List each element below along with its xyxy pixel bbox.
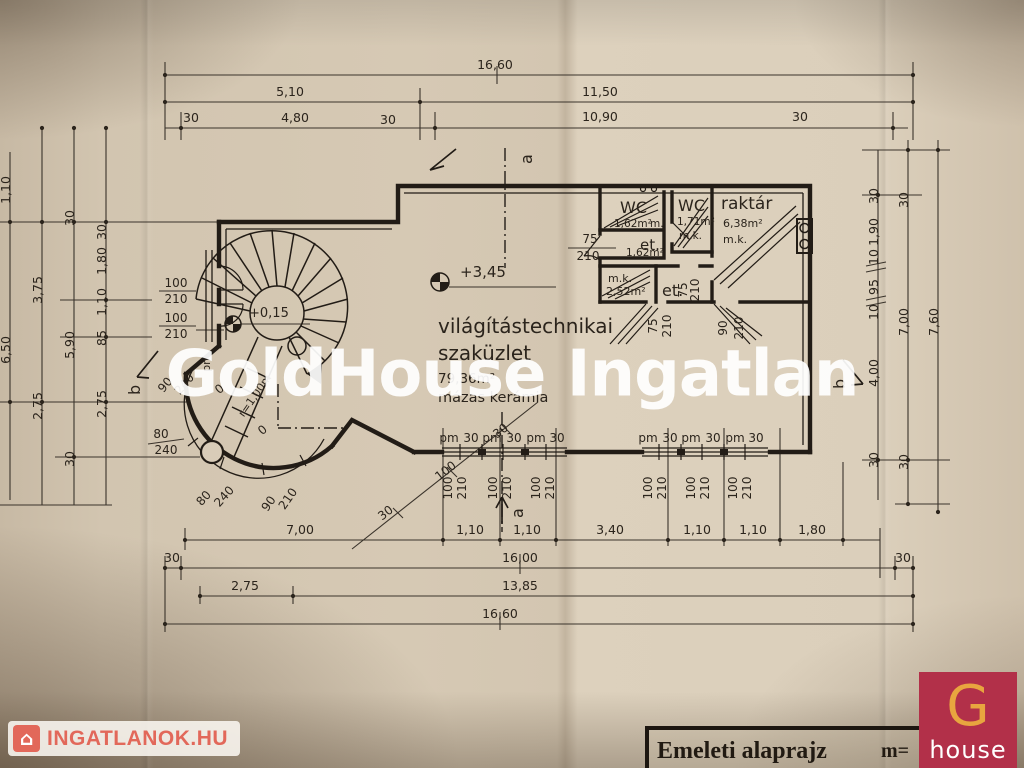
drawing-title: Emeleti alaprajz bbox=[657, 738, 827, 765]
dim-label: 1,10 bbox=[739, 522, 767, 537]
room-name: raktár bbox=[721, 194, 772, 214]
dim-label: 5,90 bbox=[62, 331, 77, 359]
room-name: WC bbox=[620, 198, 647, 217]
window-label: 30 bbox=[463, 431, 478, 445]
room-floor: m.k. bbox=[723, 233, 747, 246]
dim-label: 16,60 bbox=[482, 606, 518, 621]
dim-label: 0 bbox=[255, 422, 270, 438]
door-size-label: 210 bbox=[688, 279, 702, 302]
room-name: m.k. bbox=[608, 272, 632, 285]
room-area: 1,62m² bbox=[626, 247, 664, 259]
window-label: pm bbox=[725, 431, 744, 445]
door-size-label: 100 bbox=[165, 311, 188, 325]
section-label: b bbox=[125, 385, 144, 395]
dim-label: 2,75 bbox=[231, 578, 259, 593]
ghouse-logo-letter: G bbox=[946, 674, 989, 739]
window-size-label: 100 bbox=[726, 477, 740, 500]
window-size-label: 100 bbox=[641, 477, 655, 500]
section-arrow-icon bbox=[137, 351, 158, 378]
door-size-label: 240 bbox=[155, 443, 178, 457]
door-size-label: 80 bbox=[193, 488, 214, 509]
dim-label: 1,80 bbox=[94, 247, 109, 275]
section-arrow-icon bbox=[430, 149, 456, 170]
dim-label: 4,00 bbox=[866, 359, 881, 387]
dim-label: 30 bbox=[896, 192, 911, 208]
door-size-label: 75 bbox=[646, 318, 660, 333]
window-label: pm bbox=[638, 431, 657, 445]
dim-label: 7,00 bbox=[896, 308, 911, 336]
window-label: 30 bbox=[748, 431, 763, 445]
room-floor: m.k. bbox=[679, 230, 702, 242]
dim-label: 1,10 bbox=[456, 522, 484, 537]
dim-label: 1,10 bbox=[513, 522, 541, 537]
dim-label: 6,50 bbox=[0, 336, 13, 364]
door-size-label: 210 bbox=[732, 317, 746, 340]
dim-label: 1,10 bbox=[0, 176, 13, 204]
door-size-label: 210 bbox=[577, 249, 600, 263]
window-size-label: 210 bbox=[543, 477, 557, 500]
dim-label: 30 bbox=[62, 451, 77, 467]
dim-label: 3,40 bbox=[596, 522, 624, 537]
scale-label: m= bbox=[881, 740, 909, 763]
door-size-label: 90 bbox=[716, 320, 730, 335]
section-label: a bbox=[508, 508, 527, 518]
dim-label: 30 bbox=[94, 224, 109, 240]
window-label: 30 bbox=[549, 431, 564, 445]
window-size-label: 210 bbox=[455, 477, 469, 500]
room-name: et. bbox=[662, 281, 683, 300]
dim-label: 30 bbox=[792, 109, 808, 124]
dim-label: 1,90 bbox=[866, 218, 881, 246]
door-size-label: 210 bbox=[660, 315, 674, 338]
window-size-label: 210 bbox=[740, 477, 754, 500]
dim-label: 1,80 bbox=[798, 522, 826, 537]
door-size-label: 80 bbox=[153, 427, 168, 441]
window-label: pm bbox=[681, 431, 700, 445]
dim-label: 30 bbox=[895, 550, 911, 565]
window-label: pm bbox=[526, 431, 545, 445]
window-size-label: 100 bbox=[684, 477, 698, 500]
dim-label: 11,50 bbox=[582, 84, 618, 99]
dim-label: 85 bbox=[94, 330, 109, 346]
room-area: 1,62m² bbox=[614, 218, 652, 230]
watermark-text: GoldHouse Ingatlan bbox=[166, 337, 859, 411]
house-icon: ⌂ bbox=[13, 725, 40, 752]
dim-label: 30 bbox=[164, 550, 180, 565]
dim-label: 2,75 bbox=[30, 392, 45, 420]
ingatlanok-logo-text: INGATLANOK.HU bbox=[47, 727, 228, 751]
section-arrow-icon bbox=[496, 497, 508, 524]
window-label: pm bbox=[439, 431, 458, 445]
room-name: WC bbox=[678, 196, 705, 215]
title-block: Emeleti alaprajz m= bbox=[645, 726, 923, 768]
dim-label: 2,75 bbox=[94, 390, 109, 418]
dim-label: 30 bbox=[375, 503, 396, 523]
dim-label: 16,00 bbox=[502, 550, 538, 565]
ghouse-logo-word: house bbox=[929, 736, 1006, 764]
ingatlanok-logo: ⌂ INGATLANOK.HU bbox=[8, 721, 240, 756]
room-area: 2,52m² bbox=[606, 285, 646, 298]
window-label: 30 bbox=[705, 431, 720, 445]
dim-label: 30 bbox=[380, 112, 396, 127]
window-size-label: 100 bbox=[529, 477, 543, 500]
door-size-label: 210 bbox=[165, 292, 188, 306]
dim-label: 7,60 bbox=[926, 308, 941, 336]
dim-label: 1,10 bbox=[94, 288, 109, 316]
window-size-label: 210 bbox=[698, 477, 712, 500]
door-size-label: 100 bbox=[165, 276, 188, 290]
door-size-label: 210 bbox=[276, 485, 301, 512]
dim-label: 13,85 bbox=[502, 578, 538, 593]
level-label: +3,45 bbox=[460, 263, 506, 281]
dim-label: 7,00 bbox=[286, 522, 314, 537]
window-size-label: 100 bbox=[486, 477, 500, 500]
dim-label: 4,80 bbox=[281, 110, 309, 125]
dim-label: 5,10 bbox=[276, 84, 304, 99]
dim-label: 30 bbox=[896, 454, 911, 470]
section-label: a bbox=[517, 154, 536, 164]
room-floor: m. bbox=[650, 218, 664, 230]
room-area: 1,71m² bbox=[677, 216, 715, 228]
dim-label: 30 bbox=[866, 188, 881, 204]
dim-label: 1,10 bbox=[683, 522, 711, 537]
ghouse-logo: G house bbox=[919, 672, 1017, 768]
dim-label: 10 bbox=[866, 249, 881, 265]
dim-label: 30 bbox=[866, 452, 881, 468]
dim-label: 10,90 bbox=[582, 109, 618, 124]
door-size-label: 75 bbox=[582, 232, 597, 246]
window-size-label: 210 bbox=[500, 477, 514, 500]
dim-label: 95 bbox=[866, 279, 881, 295]
dim-label: 10 bbox=[866, 304, 881, 320]
dim-label: 30 bbox=[62, 210, 77, 226]
window-size-label: 210 bbox=[655, 477, 669, 500]
level-label: +0,15 bbox=[249, 306, 289, 321]
window-label: 30 bbox=[662, 431, 677, 445]
dim-label: 3,75 bbox=[30, 276, 45, 304]
photographed-floorplan: 16,60 5,10 11,50 30 4,80 30 10,90 30 7,0… bbox=[0, 0, 1024, 768]
room-name: világítástechnikai bbox=[438, 314, 613, 338]
dim-label: 30 bbox=[183, 110, 199, 125]
room-area: 6,38m² bbox=[723, 217, 763, 230]
door-size-label: 240 bbox=[211, 483, 237, 509]
dim-label: 16,60 bbox=[477, 57, 513, 72]
